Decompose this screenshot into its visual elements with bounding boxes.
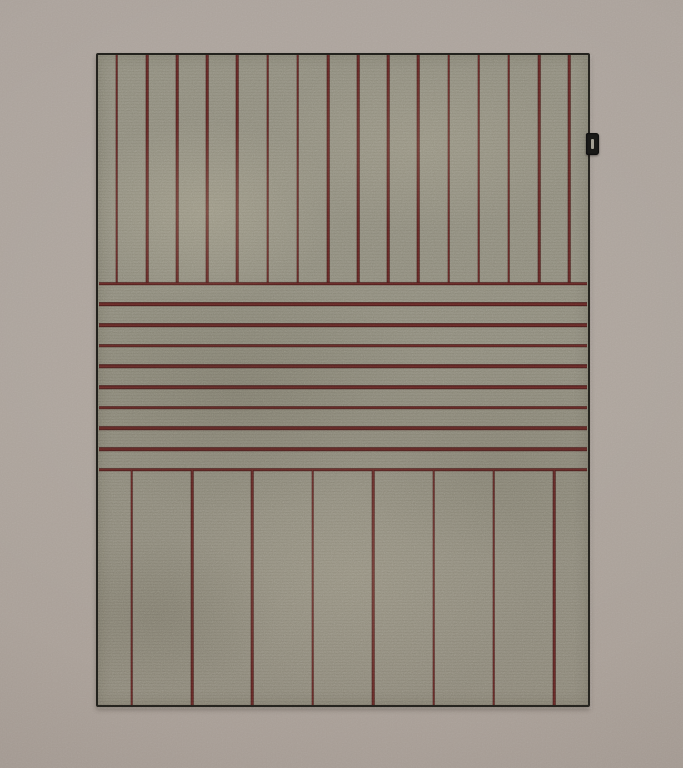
rug-pattern [98,55,588,705]
photo-canvas [0,0,683,768]
rug-stripe [99,385,587,389]
rug-stripe [99,406,587,410]
rug-stripe [568,55,571,284]
rug-stripe [553,470,556,705]
rug-stripe [176,55,179,284]
rug-stripe [312,470,315,705]
rug-middle-section-horizontal-stripes [98,284,588,470]
rug-stripe [447,55,450,284]
rug-stripe [327,55,330,284]
rug [96,53,590,707]
rug-stripe [417,55,420,284]
rug-stripe [99,323,587,327]
rug-stripe [357,55,360,284]
rug-stripe [296,55,299,284]
rug-bottom-section-vertical-stripes [98,470,588,705]
rug-stripe [493,470,496,705]
rug-stripe [99,344,587,348]
tag-logo-mark [591,139,594,149]
rug-stripe [99,447,587,451]
rug-stripe [206,55,209,284]
rug-stripe [251,470,254,705]
rug-stripe [99,303,587,307]
rug-stripe [508,55,511,284]
rug-top-section-vertical-stripes [98,55,588,284]
brand-tag [586,133,599,155]
rug-stripe [146,55,149,284]
rug-stripe [372,470,375,705]
rug-stripe [538,55,541,284]
rug-stripe [191,470,194,705]
rug-stripe [99,365,587,369]
rug-stripe [477,55,480,284]
rug-stripe [236,55,239,284]
rug-stripe [131,470,134,705]
rug-stripe [116,55,119,284]
rug-stripe [432,470,435,705]
rug-stripe [99,427,587,431]
rug-stripe [387,55,390,284]
rug-stripe [266,55,269,284]
